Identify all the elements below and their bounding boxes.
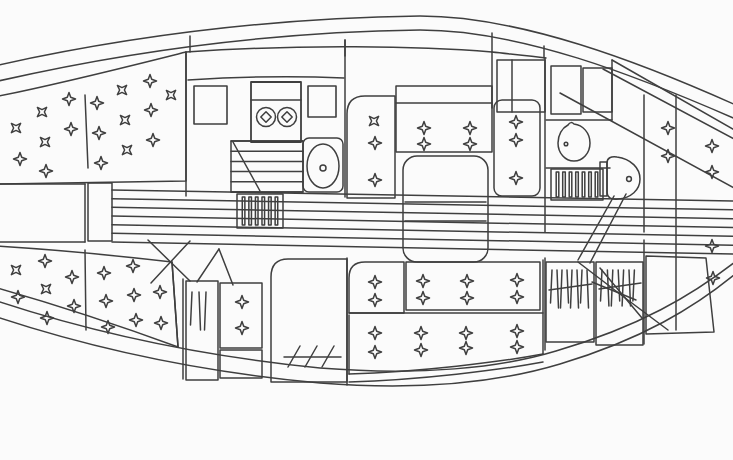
v-berth-starboard-tufts [7,255,168,334]
settee-back-left-tufts [369,276,382,307]
scanned-boat-plan-page [0,0,733,460]
fwd-hanging-locker-contents [191,292,207,330]
nav-seat [220,283,262,348]
galley-counter-stripes [231,141,303,192]
aft-hanging-locker-1-contents [549,270,592,308]
cabin-sole-planking [112,190,733,254]
settee-back-long-tufts [417,274,524,305]
dinette-back-bench [396,86,492,152]
dinette-back-tufts [418,122,477,151]
aft-berth-panel [646,256,714,334]
companionway-hatch [497,60,545,112]
aft-lockers [546,262,643,345]
stove [251,82,301,142]
chart-table-hatch-marks [284,346,341,367]
starboard-settee [349,260,543,382]
stove-burners [257,108,297,127]
nav-seat-tufts [236,296,249,335]
toilet [600,157,640,199]
settee-seat-tufts [369,325,524,359]
saloon-table [403,156,488,262]
head-locker-1 [551,66,581,114]
dinette-left-seat [347,96,395,198]
shower-grate [551,169,603,200]
dinette-right-tufts [510,116,523,185]
dinette [347,86,540,198]
v-berth-liftout-panel [88,183,112,241]
v-berth-port-cushion [0,52,186,184]
settee-back-left [349,262,404,313]
head-locker-2 [583,68,612,112]
galley-locker-left [194,86,227,124]
settee-back-long [406,262,540,310]
v-berth-starboard-cushion [0,246,178,347]
aft-berth-port-tufts [662,122,719,179]
galley-locker-right [308,86,336,117]
v-berth-port-tufts [7,75,180,178]
head-sink [558,123,590,161]
sailboat-interior-layout [0,0,733,460]
galley-sink [303,138,343,192]
aft-hanging-locker-2 [596,262,643,345]
dinette-left-tufts [365,112,383,187]
fwd-cabin-door-folds [148,240,233,285]
v-berth-insert [0,184,85,242]
nav-area [186,259,347,382]
galley-counter [231,141,303,192]
galley [194,82,343,228]
